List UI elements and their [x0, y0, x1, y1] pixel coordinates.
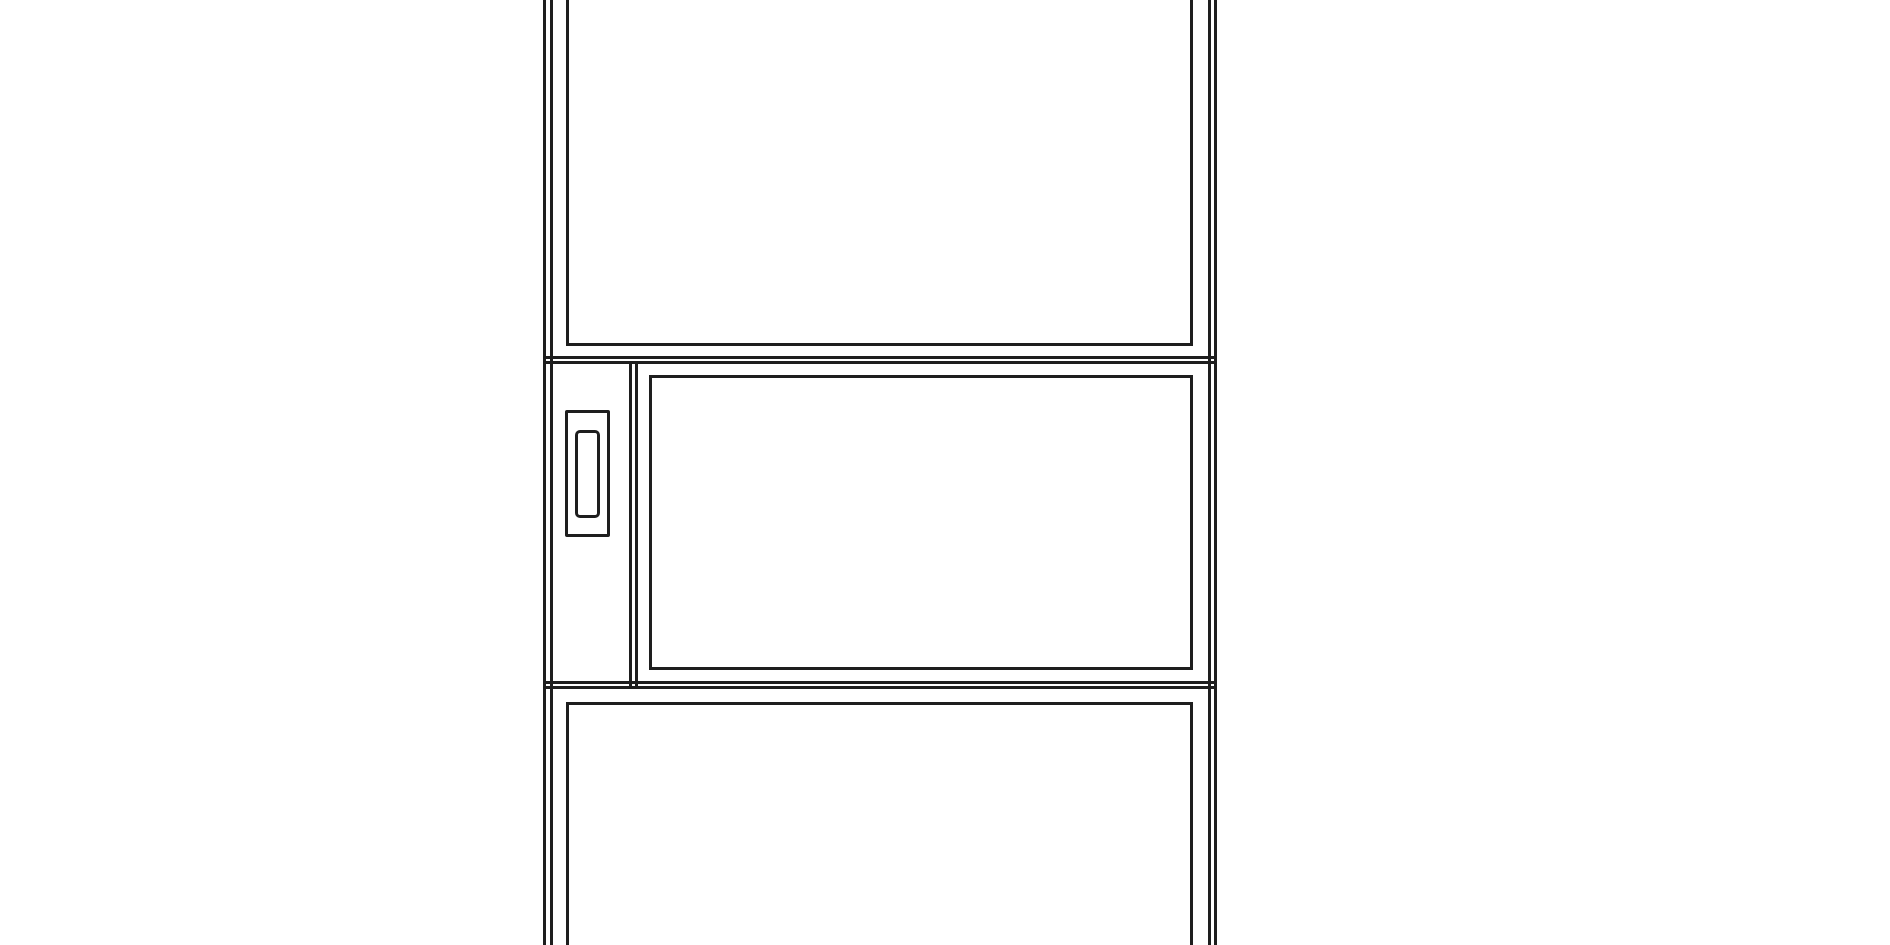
cabinet-left-side-outer-line — [543, 0, 546, 945]
pull-handle-inner — [575, 430, 600, 518]
cabinet-elevation-drawing — [0, 0, 1890, 945]
upper-rail-line-top — [545, 356, 1216, 359]
middle-stile-line-left — [629, 362, 632, 689]
middle-stile-line-right — [635, 362, 638, 689]
lower-rail-line-top — [545, 681, 1216, 684]
lower-door-panel — [566, 702, 1193, 945]
cabinet-right-side-inner-line — [1208, 0, 1211, 945]
lower-rail-line-bottom — [545, 686, 1216, 689]
upper-door-panel — [566, 0, 1193, 346]
cabinet-left-side-inner-line — [550, 0, 553, 945]
middle-drawer-front — [649, 375, 1193, 670]
upper-rail-line-bottom — [545, 361, 1216, 364]
cabinet-right-side-outer-line — [1214, 0, 1217, 945]
